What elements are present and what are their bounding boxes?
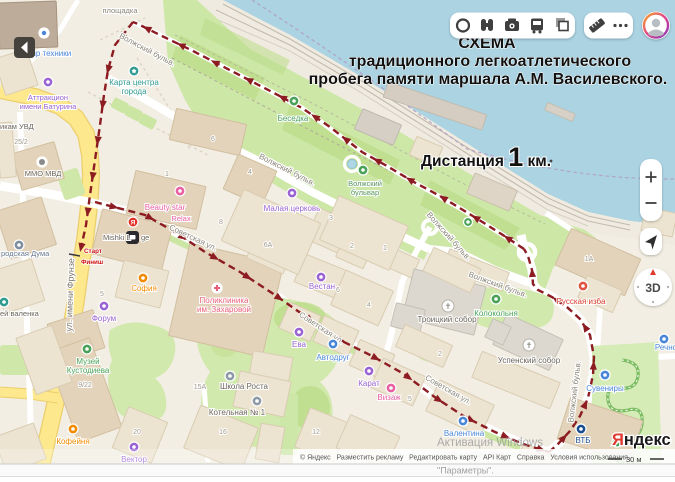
svg-text:✝: ✝ (526, 341, 533, 350)
svg-text:икам УВД: икам УВД (0, 122, 34, 131)
svg-text:Mishki L: Mishki L (103, 233, 131, 242)
svg-text:5: 5 (100, 291, 104, 298)
svg-text:Волжский: Волжский (348, 179, 382, 188)
svg-text:12: 12 (312, 429, 320, 436)
svg-text:ей валенка: ей валенка (0, 309, 40, 318)
svg-text:им. Захаровой: им. Захаровой (197, 305, 251, 314)
svg-text:Relax: Relax (171, 214, 190, 223)
svg-text:Карта центра: Карта центра (109, 78, 159, 87)
svg-text:Кустодиева: Кустодиева (67, 366, 110, 375)
svg-text:8: 8 (219, 219, 223, 226)
svg-text:30 м: 30 м (626, 455, 642, 464)
svg-text:Сувениры: Сувениры (586, 384, 624, 393)
svg-text:6: 6 (211, 136, 215, 143)
svg-text:Старт: Старт (84, 248, 102, 255)
svg-text:1: 1 (383, 245, 387, 252)
svg-text:ge: ge (141, 233, 149, 242)
svg-text:родская Дума: родская Дума (1, 249, 50, 258)
svg-text:3D: 3D (645, 281, 661, 295)
svg-text:София: София (131, 284, 157, 293)
svg-text:Визаж: Визаж (377, 393, 401, 402)
svg-text:Троицкий собор: Троицкий собор (417, 315, 477, 324)
svg-text:имени Батурина: имени Батурина (20, 102, 78, 111)
svg-text:15А: 15А (194, 384, 207, 391)
svg-text:ВТБ: ВТБ (576, 436, 591, 445)
svg-text:2: 2 (438, 351, 442, 358)
svg-text:бульвар: бульвар (351, 188, 379, 197)
svg-text:Яндекс: Яндекс (612, 431, 671, 449)
svg-text:4: 4 (248, 169, 252, 176)
svg-text:Малая церковь: Малая церковь (264, 204, 321, 213)
svg-text:16: 16 (219, 429, 227, 436)
svg-text:1: 1 (165, 171, 169, 178)
svg-text:6А: 6А (264, 242, 273, 249)
svg-text:Автодруг: Автодруг (316, 353, 349, 362)
svg-text:Поликлиника: Поликлиника (200, 296, 249, 305)
svg-text:города: города (121, 87, 147, 96)
svg-text:25/2: 25/2 (14, 139, 28, 146)
svg-text:Аттракцион: Аттракцион (28, 93, 68, 102)
svg-text:Котельная № 1: Котельная № 1 (209, 408, 266, 417)
svg-text:Беседка: Беседка (278, 114, 309, 123)
svg-text:9/22: 9/22 (78, 382, 92, 389)
svg-text:✝: ✝ (445, 302, 452, 311)
svg-text:Колокольня: Колокольня (474, 309, 518, 318)
svg-text:Русская изба: Русская изба (557, 297, 606, 306)
svg-text:"Параметры".: "Параметры". (437, 466, 494, 476)
svg-text:4: 4 (367, 302, 371, 309)
svg-text:пробега памяти маршала А.М. Ва: пробега памяти маршала А.М. Василевского… (309, 71, 668, 88)
svg-text:Я: Я (131, 219, 136, 226)
svg-text:Успенский собор: Успенский собор (498, 356, 561, 365)
svg-text:5: 5 (408, 396, 412, 403)
svg-text:Речно: Речно (655, 343, 675, 352)
svg-text:Кофейня: Кофейня (56, 437, 89, 446)
svg-text:© Яндекс Разместить рекламу: © Яндекс Разместить рекламу Редактироват… (300, 454, 628, 462)
svg-text:ММО МВД: ММО МВД (25, 169, 62, 178)
svg-text:Вестан: Вестан (309, 282, 335, 291)
svg-text:Beauty star: Beauty star (145, 203, 186, 212)
svg-text:1А: 1А (585, 256, 594, 263)
svg-text:площадка: площадка (102, 6, 138, 15)
svg-text:Форум: Форум (92, 314, 116, 323)
svg-text:Ева: Ева (292, 340, 306, 349)
svg-text:3: 3 (329, 215, 333, 222)
svg-text:Карат: Карат (358, 379, 380, 388)
svg-text:Музей: Музей (76, 357, 99, 366)
svg-text:2: 2 (350, 243, 354, 250)
svg-text:традиционного легкоатлетическо: традиционного легкоатлетического (349, 53, 632, 70)
svg-text:Финиш: Финиш (81, 259, 103, 266)
svg-text:★: ★ (131, 68, 137, 76)
svg-text:Активация Windows: Активация Windows (437, 437, 543, 449)
svg-text:20: 20 (133, 429, 141, 436)
svg-text:6: 6 (336, 287, 340, 294)
svg-text:Школа Роста: Школа Роста (220, 382, 269, 391)
